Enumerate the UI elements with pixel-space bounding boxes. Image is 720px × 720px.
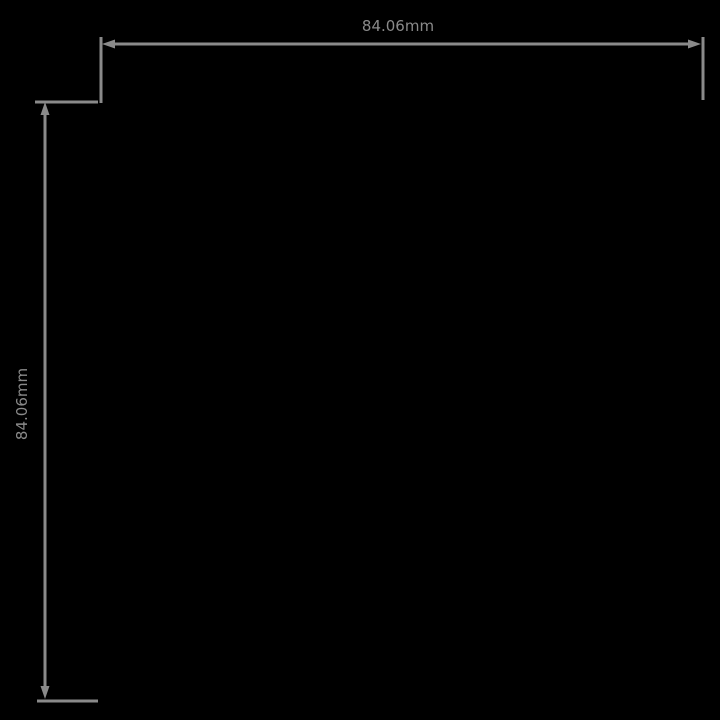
top-dimension-label: 84.06mm [362,17,434,35]
top-dimension-arrow-left-icon [102,40,115,49]
left-dimension-arrow-bottom-icon [41,686,50,699]
left-dimension-label: 84.06mm [13,368,31,440]
top-dimension-arrow-right-icon [688,40,701,49]
left-dimension-arrow-top-icon [41,102,50,115]
drawing-canvas: 84.06mm 84.06mm [0,0,720,720]
dimension-drawing: 84.06mm 84.06mm [0,0,720,720]
